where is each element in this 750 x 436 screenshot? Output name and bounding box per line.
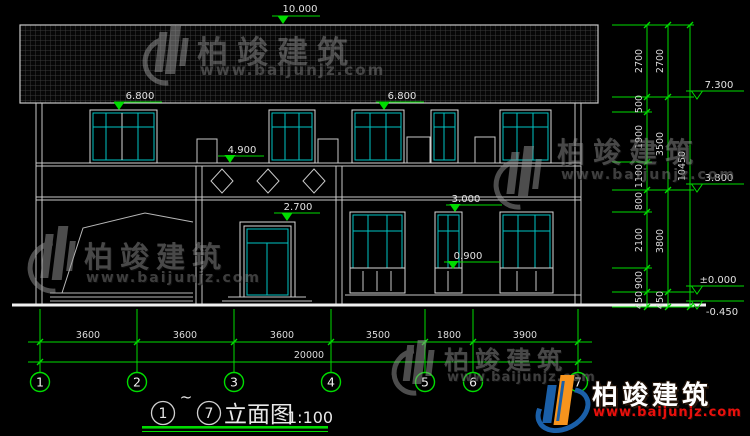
- baijun-logo-icon: [143, 26, 189, 84]
- baijun-logo-icon: [28, 226, 78, 290]
- logo-url: www.baijunjz.com: [593, 405, 742, 420]
- watermark-url: www.baijunjz.com: [200, 61, 385, 79]
- watermark-url: www.baijunjz.com: [561, 167, 736, 183]
- baijun-color-logo: 柏竣建筑 www.baijunjz.com: [534, 371, 750, 433]
- baijun-logo-icon: [494, 146, 544, 206]
- watermark-brand: 柏竣建筑: [557, 131, 701, 171]
- baijun-logo-icon: [534, 373, 590, 431]
- watermark-url: www.baijunjz.com: [86, 270, 261, 286]
- elevation-drawing-canvas: 10.000 6.800 6.800 4.900 3.000 2.700 0.9…: [0, 0, 750, 436]
- baijun-logo-icon: [392, 340, 438, 390]
